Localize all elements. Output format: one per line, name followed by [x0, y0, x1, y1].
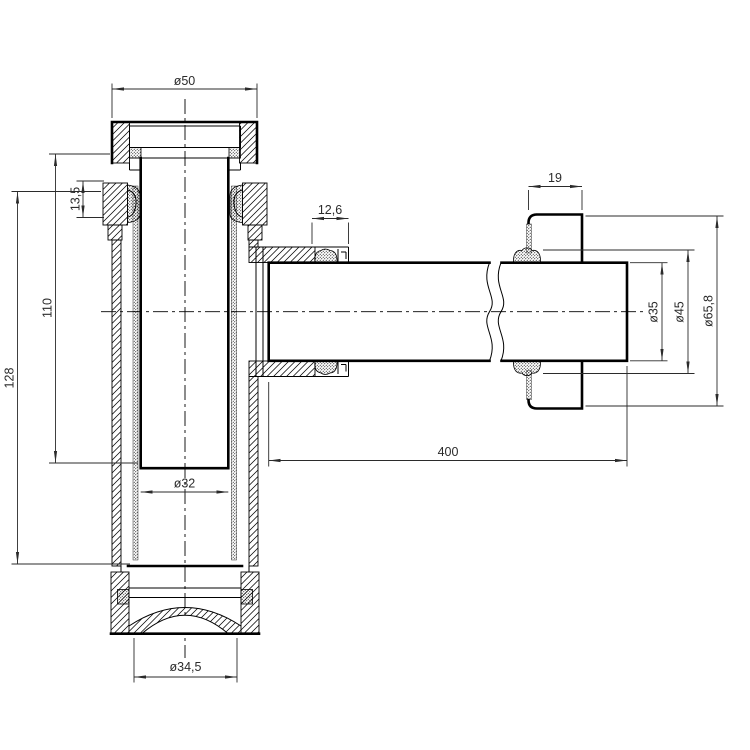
dim-label-dip-tube-depth: 110 [41, 298, 55, 318]
dimension-flange-od: ø50 [112, 74, 257, 118]
centerlines [101, 99, 646, 658]
dim-label-pipe-length: 400 [438, 445, 459, 459]
dim-label-outlet-nut-width: 12,6 [318, 203, 342, 217]
nut-left-upper-section [103, 183, 128, 225]
dim-label-escutcheon-od: ø65,8 [702, 295, 716, 327]
body-wall-left [112, 240, 121, 566]
extension-lines [529, 190, 583, 210]
nut-right-lower-section [248, 225, 262, 240]
cap-seal-right [241, 590, 253, 605]
dim-label-escutcheon-depth: 19 [548, 171, 562, 185]
dimension-top-nut-height: 13,5 [69, 181, 105, 218]
body-wall-right-lower [249, 377, 258, 567]
flange-rim-left-section [112, 122, 130, 163]
thread-strip-right [232, 186, 237, 560]
dimension-dip-tube-id: ø32 [141, 477, 229, 493]
dip-tube-walls [141, 158, 229, 468]
nut-left-lower-section [108, 225, 122, 240]
body-wall-right-upper [249, 240, 258, 247]
body-detail-lines [121, 247, 263, 572]
dim-label-flange-od: ø50 [174, 74, 196, 88]
branch-seal-top [315, 249, 337, 263]
flange-seal-right [229, 148, 241, 159]
dim-label-body-depth: 128 [3, 368, 17, 389]
dim-label-cap-od: ø34,5 [170, 660, 202, 674]
flange-rim-right-section [240, 122, 258, 163]
bottle-trap-section-drawing: ø50 13,5 110 128 12,6 19 [0, 0, 750, 750]
dimension-body-depth: 128 [3, 192, 131, 565]
dim-label-dip-tube-id: ø32 [174, 477, 196, 491]
dimension-pipe-length: 400 [269, 366, 627, 467]
dimension-escutcheon-depth: 19 [529, 171, 583, 210]
cap-seal-left [118, 590, 130, 605]
dim-label-pipe-od: ø35 [647, 301, 661, 323]
extension-lines [312, 223, 349, 245]
thread-strip-left [133, 186, 138, 560]
dimension-outlet-nut-width: 12,6 [312, 203, 349, 244]
escutcheon-seal-top [513, 248, 540, 263]
escutcheon-seal-bottom [513, 361, 540, 376]
dimension-cap-od: ø34,5 [134, 638, 237, 683]
dimension-seal-od: ø45 [543, 250, 695, 374]
nut-right-upper-section [243, 183, 268, 225]
dim-label-seal-od: ø45 [673, 301, 687, 323]
branch-wall-bottom [249, 361, 315, 377]
branch-seal-bottom [315, 361, 337, 375]
technical-drawing-page: ø50 13,5 110 128 12,6 19 [0, 0, 750, 750]
dim-label-top-nut-height: 13,5 [69, 187, 83, 211]
top-flange [112, 122, 257, 170]
branch-wall-top [249, 247, 315, 263]
flange-seal-left [130, 148, 142, 159]
